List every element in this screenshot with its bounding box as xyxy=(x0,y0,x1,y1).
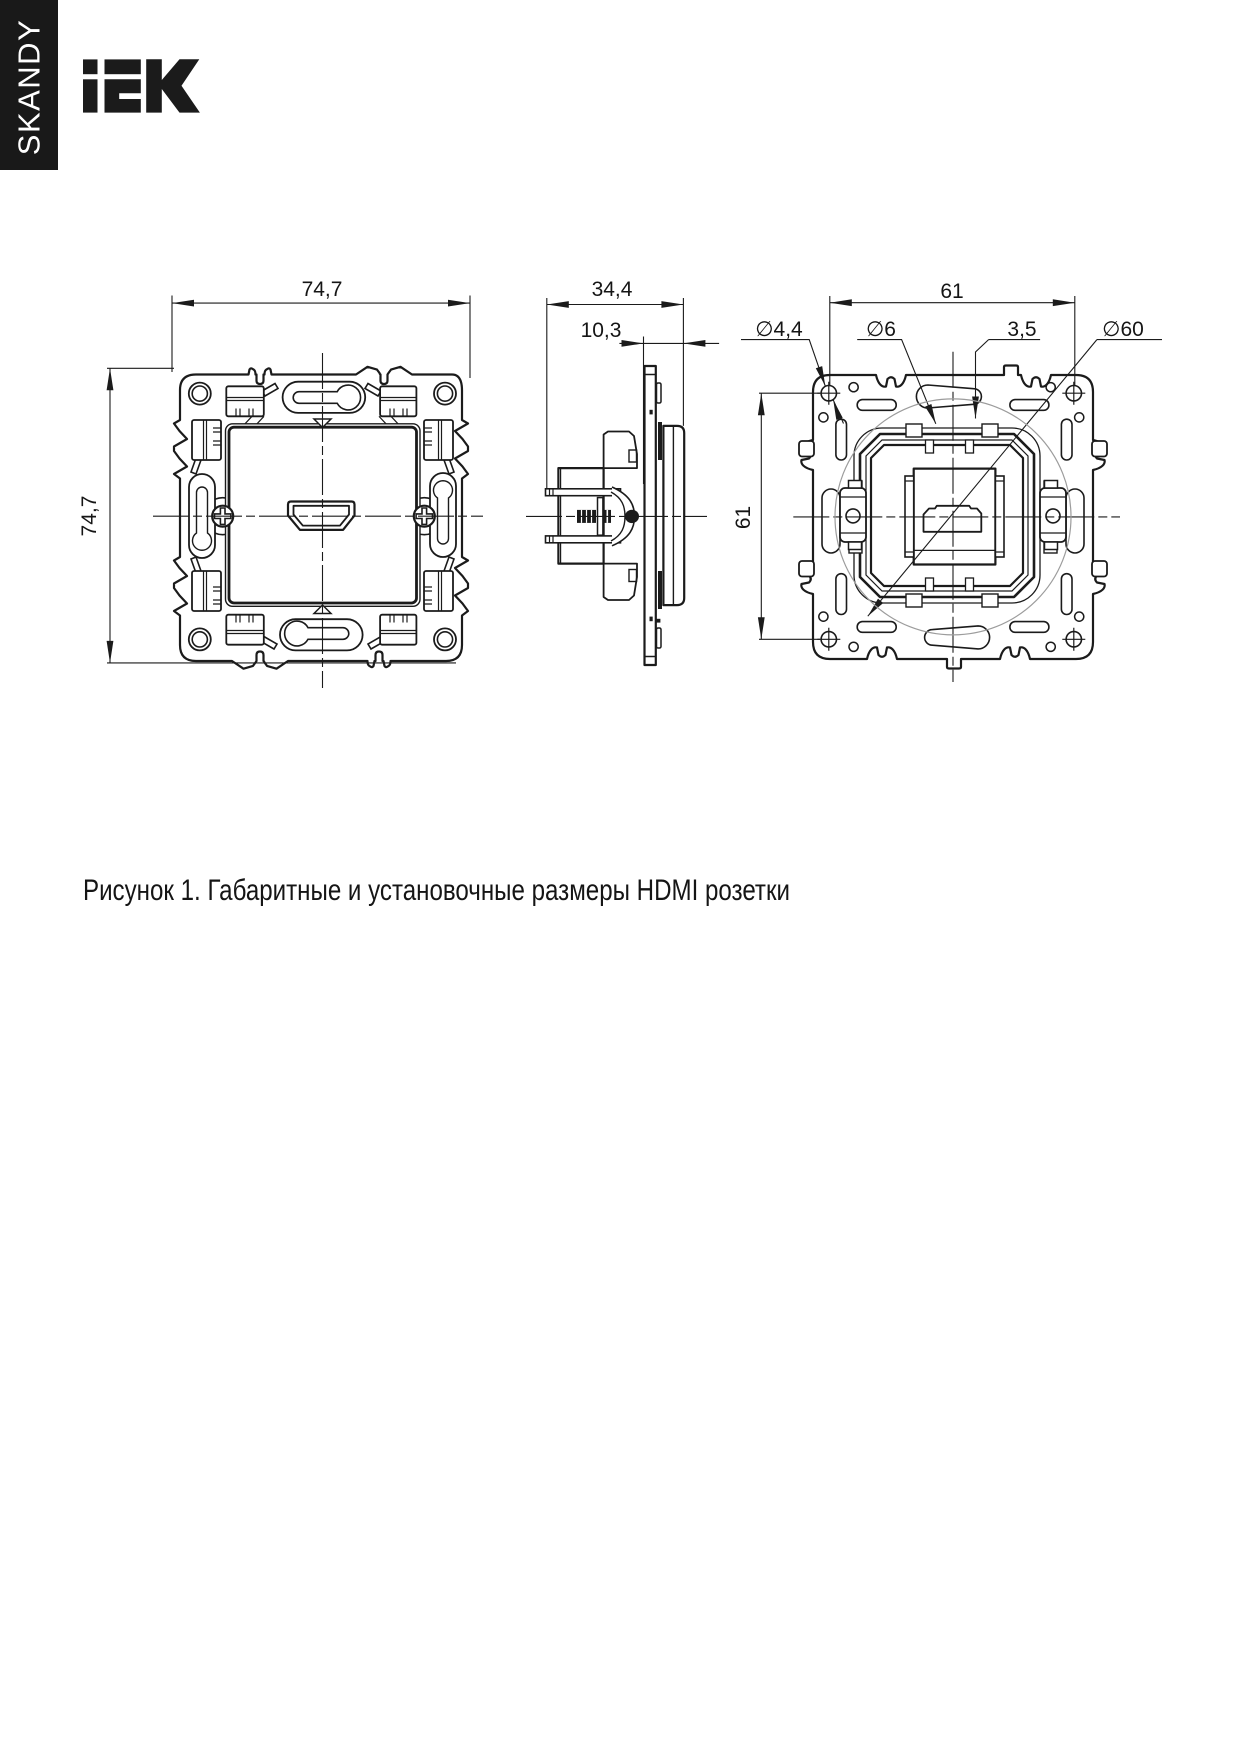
svg-text:34,4: 34,4 xyxy=(592,278,633,301)
svg-text:∅60: ∅60 xyxy=(1102,318,1144,341)
svg-text:3,5: 3,5 xyxy=(1007,318,1036,341)
svg-text:SKANDY: SKANDY xyxy=(12,19,47,155)
svg-text:61: 61 xyxy=(732,506,755,529)
svg-text:74,7: 74,7 xyxy=(78,496,101,537)
svg-text:Рисунок 1. Габаритные и устано: Рисунок 1. Габаритные и установочные раз… xyxy=(83,874,790,907)
svg-text:∅6: ∅6 xyxy=(866,318,896,341)
svg-text:74,7: 74,7 xyxy=(302,278,343,301)
svg-text:∅4,4: ∅4,4 xyxy=(755,318,803,341)
svg-text:10,3: 10,3 xyxy=(581,319,622,342)
svg-text:61: 61 xyxy=(940,280,963,303)
